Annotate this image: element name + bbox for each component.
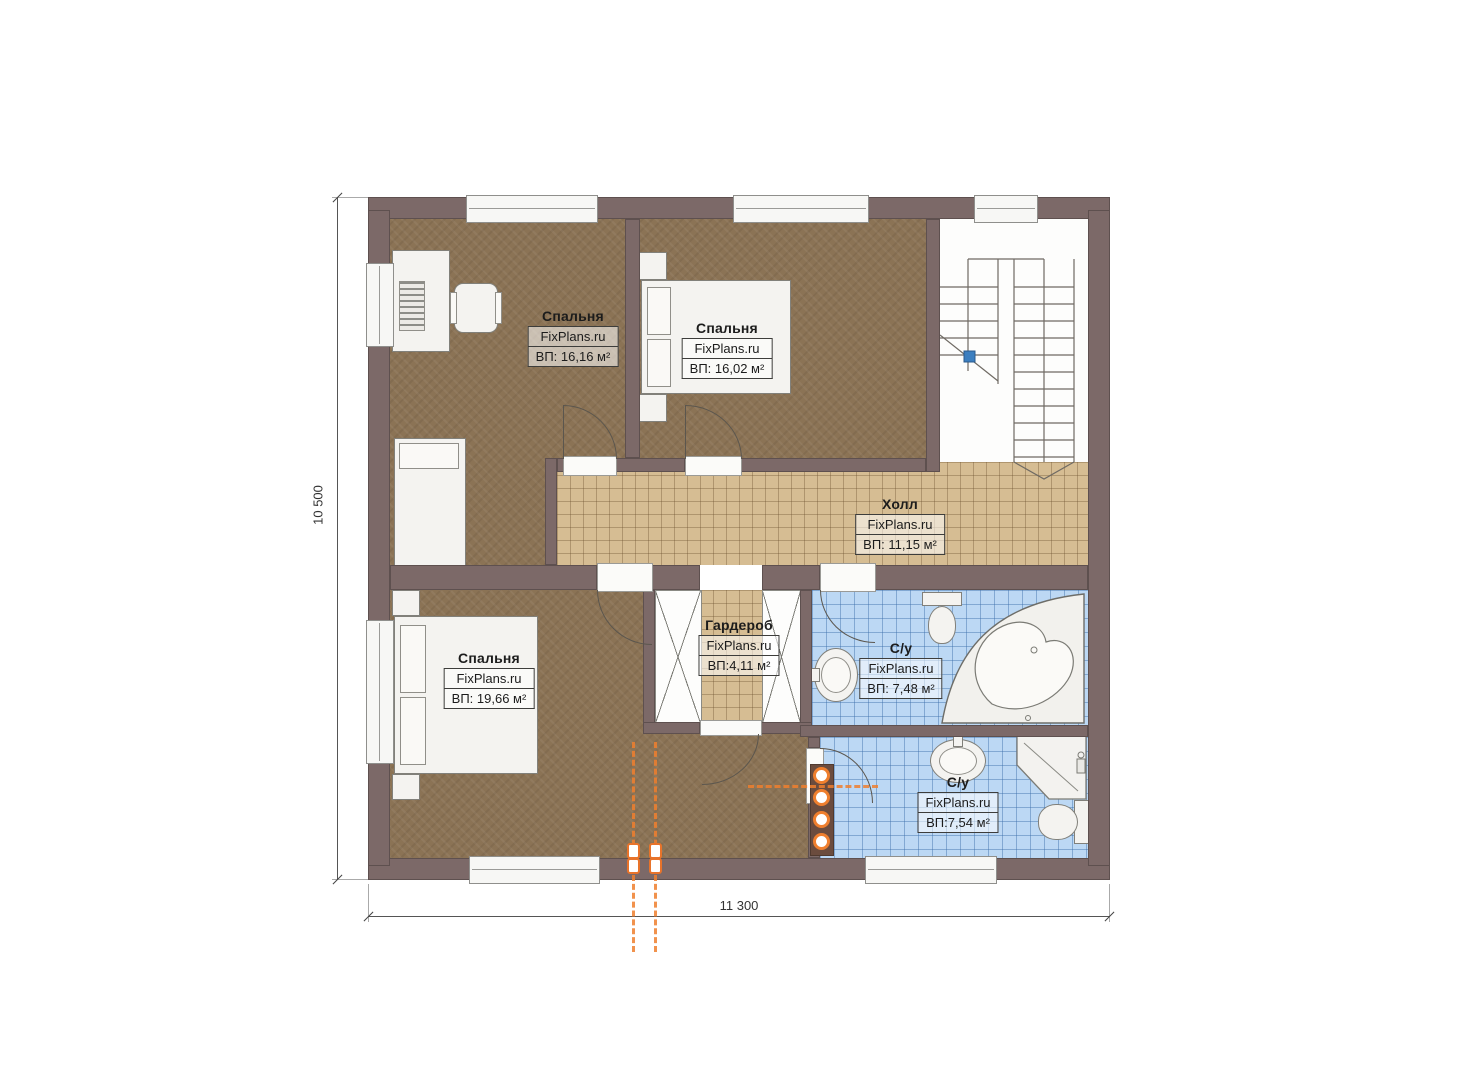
wall-wardrobe-bottom-a (643, 722, 700, 734)
floor-plan: Спальня FixPlans.ru ВП: 16,16 м² Спальня… (0, 0, 1474, 1080)
service-valve (627, 843, 640, 859)
service-valve (649, 858, 662, 874)
watermark: FixPlans.ru (698, 635, 779, 656)
bed-pillow (400, 697, 426, 765)
toilet-bowl (1038, 804, 1078, 840)
dimension-line-left (337, 197, 338, 880)
window-left-1 (366, 263, 394, 347)
room-label-bedroom2: Спальня FixPlans.ru ВП: 16,02 м² (682, 320, 773, 379)
watermark: FixPlans.ru (859, 658, 942, 679)
nightstand (392, 774, 420, 800)
bed-pillow (647, 339, 671, 387)
room-label-bedroom1: Спальня FixPlans.ru ВП: 16,16 м² (528, 308, 619, 367)
chair-armrest-left (450, 292, 457, 324)
watermark: FixPlans.ru (917, 792, 998, 813)
window-top-1 (466, 195, 598, 223)
corner-shower (1016, 735, 1088, 801)
stair-marker (964, 351, 975, 362)
window-bottom-1 (469, 856, 600, 884)
watermark: FixPlans.ru (855, 514, 945, 535)
riser-shaft (810, 764, 834, 856)
wall-bath2-left-a (808, 737, 820, 748)
dimension-height-label: 10 500 (311, 485, 326, 525)
staircase (940, 219, 1088, 481)
room-area: ВП: 7,48 м² (859, 679, 942, 699)
sink-basin (939, 747, 977, 775)
sink (814, 648, 858, 702)
riser-pipe (813, 811, 830, 828)
sink-basin (821, 657, 851, 693)
room-area: ВП:4,11 м² (698, 656, 779, 676)
wall-mid-d (874, 565, 1088, 590)
wall-bath1-bath2 (800, 725, 1088, 737)
wall-mid-c (762, 565, 820, 590)
window-bottom-2 (865, 856, 997, 884)
nightstand (392, 590, 420, 616)
door-bedroom1-leaf (563, 456, 617, 476)
desk (392, 250, 450, 352)
service-line-horizontal (748, 785, 878, 788)
room-name: Холл (855, 496, 945, 512)
room-area: ВП: 11,15 м² (855, 535, 945, 555)
window-top-3 (974, 195, 1038, 223)
chair-armrest-right (495, 292, 502, 324)
window-top-2 (733, 195, 869, 223)
watermark: FixPlans.ru (528, 326, 619, 347)
office-chair (454, 283, 498, 333)
room-name: С/у (859, 640, 942, 656)
watermark: FixPlans.ru (682, 338, 773, 359)
nightstand (637, 252, 667, 280)
room-label-bath2: С/у FixPlans.ru ВП:7,54 м² (917, 774, 998, 833)
watermark: FixPlans.ru (444, 668, 535, 689)
room-label-bedroom3: Спальня FixPlans.ru ВП: 19,66 м² (444, 650, 535, 709)
closet-unit-left (655, 590, 702, 724)
dimension-line-bottom (368, 916, 1110, 917)
room-name: Гардероб (698, 617, 779, 633)
wall-b2-stair (926, 219, 940, 472)
room-name: С/у (917, 774, 998, 790)
riser-pipe (813, 833, 830, 850)
corner-bathtub (938, 588, 1088, 725)
service-valve (649, 843, 662, 859)
wall-mid-b (651, 565, 700, 590)
room-name: Спальня (682, 320, 773, 336)
window-left-2 (366, 620, 394, 764)
wall-hall-left-stub (545, 458, 557, 565)
bed-pillow (647, 287, 671, 335)
room-area: ВП: 16,02 м² (682, 359, 773, 379)
door-bath1-leaf (820, 563, 876, 592)
room-label-hall: Холл FixPlans.ru ВП: 11,15 м² (855, 496, 945, 555)
outer-wall-right (1088, 210, 1110, 866)
door-bedroom2-leaf (685, 456, 742, 476)
room-area: ВП: 16,16 м² (528, 347, 619, 367)
room-area: ВП: 19,66 м² (444, 689, 535, 709)
nightstand (637, 394, 667, 422)
wall-wardrobe-right (800, 590, 812, 737)
room-name: Спальня (444, 650, 535, 666)
room-label-wardrobe: Гардероб FixPlans.ru ВП:4,11 м² (698, 617, 779, 676)
door-bedroom3-leaf (597, 563, 653, 592)
wall-hall-top-c (740, 458, 926, 472)
room-name: Спальня (528, 308, 619, 324)
floor-plan-page: { "watermark": "FixPlans.ru", "dimension… (0, 0, 1474, 1080)
wall-hall-top-b (615, 458, 685, 472)
single-bed-pillow (399, 443, 459, 469)
dimension-width-label: 11 300 (720, 898, 759, 913)
single-bed (394, 438, 466, 570)
riser-pipe (813, 767, 830, 784)
desk-keyboard (399, 281, 425, 331)
room-label-bath1: С/у FixPlans.ru ВП: 7,48 м² (859, 640, 942, 699)
wall-b1-b2 (625, 219, 640, 458)
riser-pipe (813, 789, 830, 806)
room-area: ВП:7,54 м² (917, 813, 998, 833)
service-valve (627, 858, 640, 874)
bed-pillow (400, 625, 426, 693)
wall-mid-a (390, 565, 597, 590)
